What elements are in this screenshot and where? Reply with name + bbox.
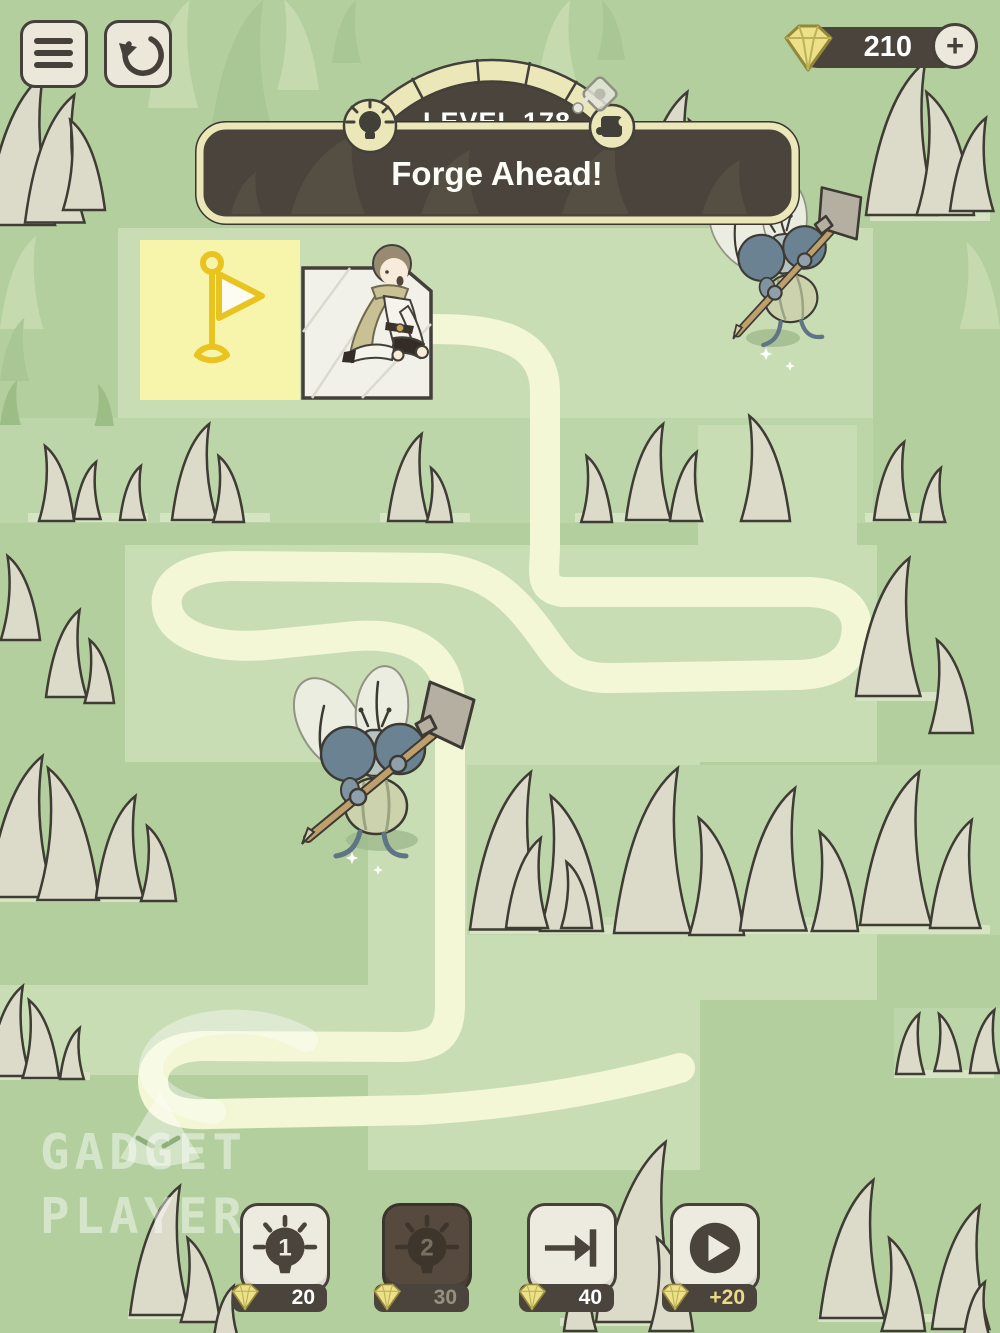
game-screen: LEVEL 178 Forge Ahead! <box>0 0 1000 1333</box>
restart-button[interactable] <box>104 20 172 88</box>
hint1-cost-badge: 20 <box>232 1284 327 1312</box>
watermark-line2: PLAYER <box>40 1192 247 1241</box>
gem-icon <box>367 1279 407 1315</box>
gem-icon <box>225 1279 265 1315</box>
gem-icon <box>773 20 843 76</box>
hint2-cost-badge: 30 <box>374 1284 469 1312</box>
menu-button[interactable] <box>20 20 88 88</box>
gem-icon <box>512 1279 552 1315</box>
restart-icon <box>107 23 168 84</box>
reward-cost-badge: +20 <box>662 1284 757 1312</box>
skip-icon <box>530 1206 614 1290</box>
hamburger-icon <box>23 23 84 84</box>
gem-count: 210 <box>864 31 912 64</box>
lightbulb-2-icon: 2 <box>385 1206 469 1290</box>
gem-icon <box>655 1279 695 1315</box>
lightbulb-1-icon: 1 <box>243 1206 327 1290</box>
skip-cost-badge: 40 <box>519 1284 614 1312</box>
play-icon <box>673 1206 757 1290</box>
plus-icon: + <box>946 28 964 64</box>
svg-text:2: 2 <box>420 1234 434 1261</box>
goal-flag-tile <box>140 240 300 400</box>
watermark-line1: GADGET <box>40 1128 247 1177</box>
add-gems-button[interactable]: + <box>932 23 978 69</box>
svg-text:1: 1 <box>278 1234 292 1261</box>
